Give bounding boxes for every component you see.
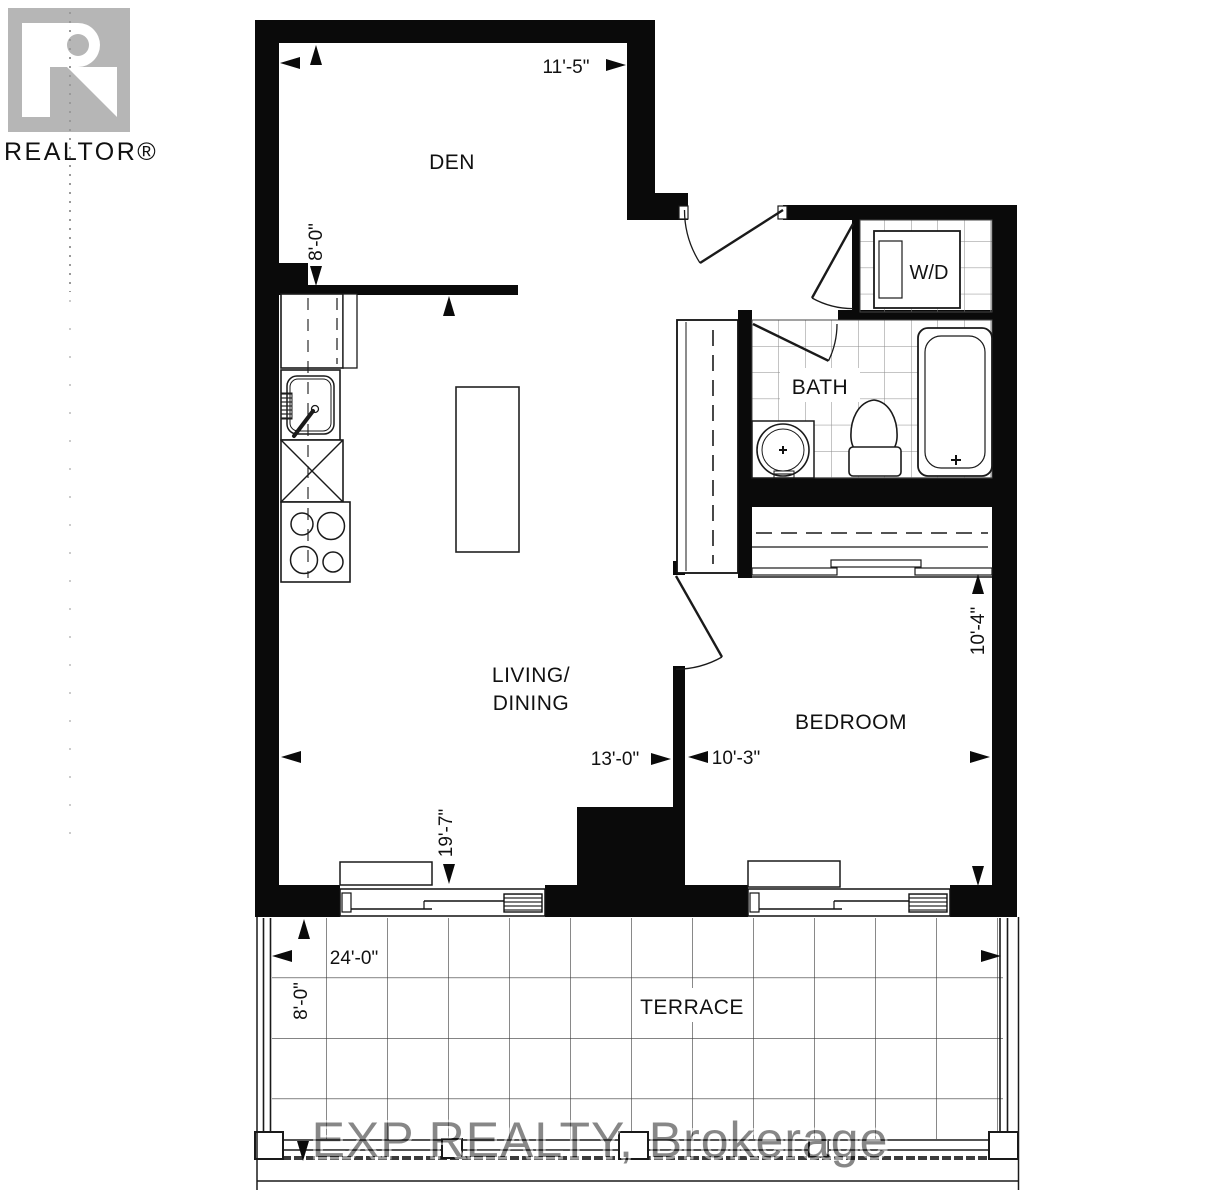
brokerage-watermark: EXP REALTY, Brokerage [312,1112,889,1168]
kitchen [281,294,519,582]
entry-door [679,206,787,263]
living-label-line2: DINING [493,692,570,715]
bathtub [918,328,992,476]
den-width-dim: 11'-5" [543,57,590,78]
bedroom-label: BEDROOM [795,711,907,734]
terrace-depth-dim: 8'-0" [291,982,312,1020]
bedroom-depth-dim: 10'-4" [968,607,989,655]
living-depth-dim: 19'-7" [436,809,457,857]
living-label-line1: LIVING/ [492,664,570,687]
laundry-label: W/D [910,262,949,284]
kitchen-island [456,387,519,552]
dishwasher [281,440,343,502]
living-window [340,889,545,916]
terrace-label: TERRACE [640,996,744,1019]
living-width-dim: 13'-0" [591,749,639,770]
bathroom: BATH [752,320,992,478]
bathroom-sink [752,421,814,478]
bath-label: BATH [792,376,848,399]
coat-closet [677,320,738,573]
laundry-door [812,224,853,309]
den-label: DEN [429,151,475,174]
living-bench [340,862,432,885]
fridge [281,294,357,368]
realtor-logo-text: REALTOR® [4,138,158,166]
terrace-tile-grid [272,918,1003,1139]
sliding-door-panel [831,560,921,567]
bedroom-door [676,576,722,669]
floor-plan-page: REALTOR® W/D [0,0,1219,1200]
laundry-closet: W/D [812,220,992,312]
bedroom-closet [752,507,992,577]
bedroom-width-dim: 10'-3" [712,748,760,769]
bedroom-window [748,889,950,916]
kitchen-sink [281,370,340,440]
floor-plan-drawing: REALTOR® W/D [0,0,1219,1200]
den-depth-dim: 8'-0" [306,223,327,261]
realtor-logo-icon [8,8,130,132]
terrace-width-dim: 24'-0" [330,948,378,969]
stove [281,502,350,582]
bedroom-bench [748,861,840,887]
